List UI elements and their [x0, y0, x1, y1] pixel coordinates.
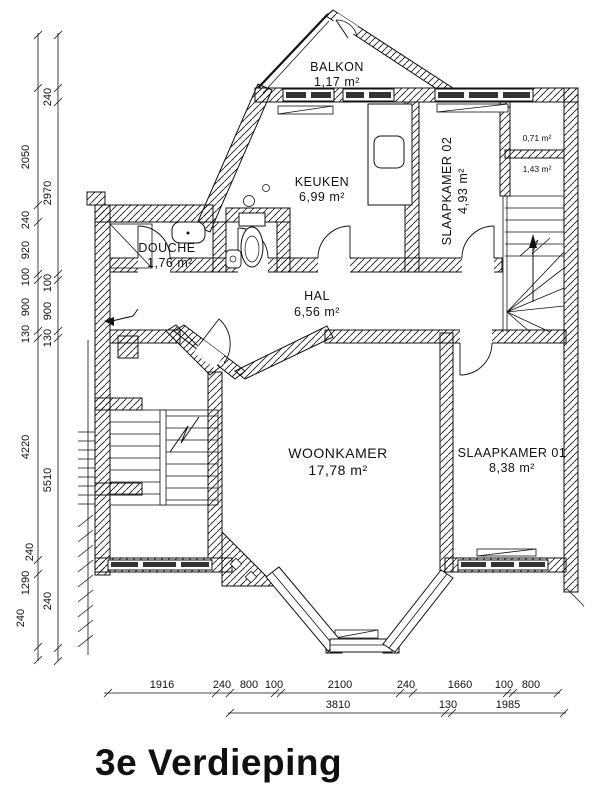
room-label-balkon: BALKON — [310, 60, 364, 74]
dim-label: 240 — [24, 543, 36, 561]
dim-label: 130 — [439, 699, 457, 711]
room-label-douche: DOUCHE — [138, 241, 195, 255]
floor-plan-sheet: 2050 240 920 100 900 130 4220 240 1290 2… — [0, 0, 609, 800]
floor-plan-drawing: 2050 240 920 100 900 130 4220 240 1290 2… — [0, 0, 609, 800]
dim-label: 240 — [42, 88, 54, 106]
room-label-slaapkamer01: SLAAPKAMER 01 — [458, 446, 567, 460]
dim-label: 100 — [42, 274, 54, 292]
stair-arrow-icon — [529, 234, 537, 248]
toilet-tank — [239, 213, 265, 226]
dim-label: 1916 — [150, 679, 174, 691]
room-area-slaapkamer01: 8,38 m² — [489, 461, 535, 475]
room-label-keuken: KEUKEN — [295, 175, 349, 189]
room-label-hal: HAL — [304, 289, 330, 303]
room-area-slaapkamer02: 4,93 m² — [456, 168, 470, 214]
dim-label: 900 — [20, 298, 32, 316]
dim-label: 100 — [265, 679, 283, 691]
boiler — [244, 196, 255, 207]
dim-label: 5510 — [42, 468, 54, 492]
dim-label: 100 — [495, 679, 513, 691]
dim-label: 4220 — [20, 435, 32, 459]
dim-label: 2970 — [42, 181, 54, 205]
bay-window — [266, 567, 584, 652]
dim-label: 900 — [42, 302, 54, 320]
room-area-balkon: 1,17 m² — [314, 75, 360, 89]
dim-label: 1290 — [20, 571, 32, 595]
page-title: 3e Verdieping — [95, 742, 342, 783]
room-area-kast-onder: 1,43 m² — [523, 164, 552, 174]
dim-label: 800 — [240, 679, 258, 691]
dim-label: 920 — [20, 241, 32, 259]
dim-label: 240 — [20, 211, 32, 229]
room-label-woonkamer: WOONKAMER — [288, 445, 387, 461]
room-area-douche: 1,76 m² — [147, 256, 193, 270]
room-area-kast-boven: 0,71 m² — [523, 133, 552, 143]
dim-label: 100 — [20, 268, 32, 286]
dim-label: 1985 — [496, 699, 520, 711]
dim-label: 130 — [20, 325, 32, 343]
stairs-right — [503, 196, 564, 332]
dim-label: 800 — [522, 679, 540, 691]
room-area-keuken: 6,99 m² — [299, 190, 345, 204]
kitchen-sink — [374, 136, 404, 168]
dim-label: 3810 — [326, 699, 350, 711]
neighbour-wall — [78, 340, 95, 655]
dim-label: 240 — [15, 609, 27, 627]
break-line — [170, 417, 199, 452]
room-label-slaapkamer02: SLAAPKAMER 02 — [440, 137, 454, 246]
dim-label: 240 — [397, 679, 415, 691]
dim-label: 240 — [213, 679, 231, 691]
room-area-woonkamer: 17,78 m² — [308, 462, 367, 478]
dim-label: 240 — [42, 592, 54, 610]
room-area-hal: 6,56 m² — [294, 305, 340, 319]
dim-label: 2100 — [328, 679, 352, 691]
dim-label: 2050 — [20, 145, 32, 169]
dim-label: 130 — [42, 329, 54, 347]
dim-label: 1660 — [448, 679, 472, 691]
